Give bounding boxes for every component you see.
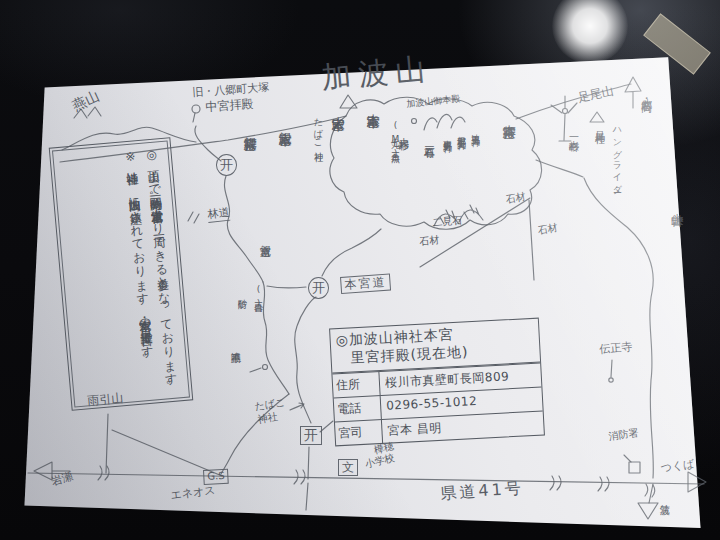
label-chugu-honden: 中宮本殿 — [331, 106, 345, 110]
label-sankakuten-709m: (七〇九M三角点) — [390, 120, 399, 159]
address-label: 住所 — [332, 372, 380, 397]
label-yasato-ishioka: 八郷・石岡 — [640, 90, 652, 95]
label-deity-izanami: 伊邪那美大神 — [456, 129, 465, 135]
label-hongu-do: 本宮道 — [340, 274, 391, 294]
priest-label: 宮司 — [335, 420, 383, 445]
label-tabako-jinja-upper: たばこ神社 — [313, 111, 322, 147]
label-ipponsugi-toge: 一本杉峠 — [568, 131, 579, 135]
label-shingu-do: 親宮道 — [259, 236, 271, 239]
label-deity-kotosakao: 事解男大神 — [442, 133, 451, 138]
label-gs-station: G.S — [203, 469, 229, 485]
label-taki-fudo: 滝不動 — [230, 344, 241, 347]
label-meoto-sugi: 夫婦杉 — [398, 130, 409, 133]
label-hongu-haiden: 本宮拝殿 — [502, 114, 516, 118]
label-hongu-honden: 本宮本殿 — [366, 103, 380, 107]
label-sangome: (三合目) — [253, 284, 262, 309]
photo-of-hand-drawn-map: 加波山燕山旧・八郷町大塚中宮拝殿开親宮拝殿親宮本殿たばこ神社中宮本殿本宮本殿(七… — [0, 0, 720, 540]
label-denshoji: 伝正寺 — [599, 341, 633, 355]
label-sekizai-lower: 石材 — [419, 235, 440, 248]
note-box-text: ◎山頂まで約一時間三十分。本宮道・親宮道より一周できる参道となっております。 ※… — [52, 140, 190, 407]
label-tsukuba-kanji: 筑波 — [659, 496, 670, 498]
label-sabo: 砂防 — [237, 292, 246, 294]
label-shingu-honden: 親宮本殿 — [278, 121, 292, 125]
label-sanzonseki: 三尊石 — [423, 137, 435, 140]
label-deity-hayatamao: 速玉男大神 — [470, 127, 479, 132]
label-school-mark: 文 — [338, 459, 358, 476]
label-torii-center: 开 — [308, 277, 329, 299]
label-uwaso-toge: 上曽峠 — [671, 203, 684, 206]
note-box: ◎山頂まで約一時間三十分。本宮道・親宮道より一周できる参道となっております。 ※… — [49, 137, 194, 411]
label-rindo: 林道 — [207, 207, 230, 223]
label-torii-satomiya: 开 — [300, 426, 322, 445]
phone-label: 電話 — [334, 396, 382, 421]
label-ashio-jinja: 足尾神社 — [594, 123, 605, 127]
label-torii-chugu: 开 — [216, 154, 237, 176]
label-hang-glider: ハングライダー — [612, 121, 621, 189]
label-shingu-haiden: 親宮拝殿 — [243, 126, 257, 130]
info-table: ◎加波山神社本宮 里宮拝殿(現在地) 住所 桜川市真壁町長岡809 電話 029… — [329, 318, 545, 447]
